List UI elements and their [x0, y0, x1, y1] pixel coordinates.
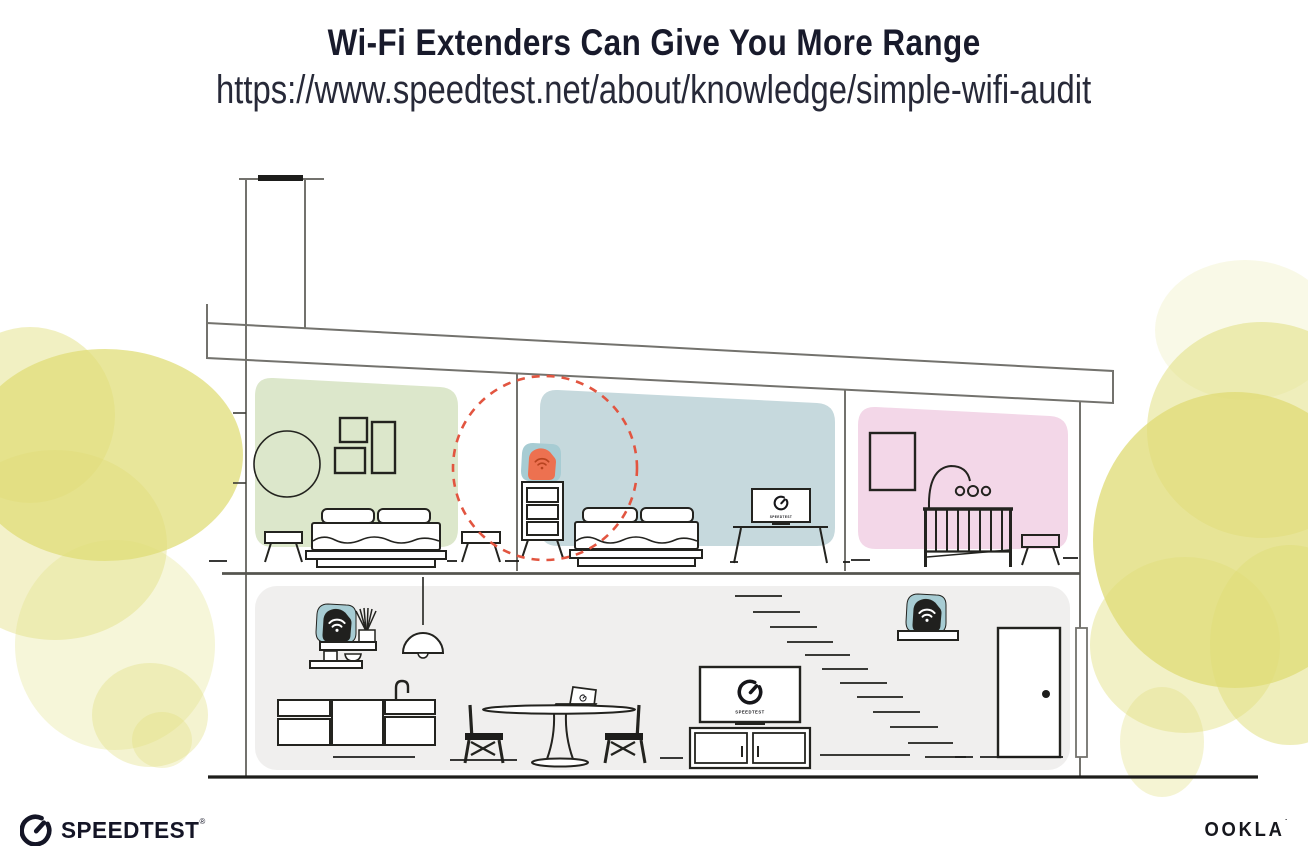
ookla-wordmark: OOKLA˙ — [1204, 818, 1290, 842]
wall-pipe — [1076, 628, 1087, 757]
nursery-pink-bg — [858, 407, 1068, 549]
stairs-shelf — [898, 631, 958, 640]
speedtest-logo: SPEEDTEST® — [20, 814, 209, 846]
door-knob — [1042, 690, 1050, 698]
front-door — [998, 628, 1060, 757]
speedtest-wordmark: SPEEDTEST® — [61, 817, 206, 844]
tv-stand — [690, 728, 810, 768]
foliage-right — [1090, 260, 1308, 797]
trademark-tick: ˙ — [1284, 818, 1290, 828]
tv-screen-label: SPEEDTEST — [735, 710, 764, 715]
chimney — [239, 175, 324, 329]
bed — [570, 508, 702, 566]
bedroom-tv: SPEEDTEST — [752, 489, 810, 525]
chimney-cap — [258, 175, 303, 181]
registered-mark: ® — [199, 817, 205, 826]
tv-screen-label: SPEEDTEST — [770, 515, 793, 519]
ookla-logo: OOKLA˙ — [1197, 818, 1290, 842]
house-cross-section-illustration: SPEEDTEST — [0, 0, 1308, 861]
infographic-page: Wi-Fi Extenders Can Give You More Range … — [0, 0, 1308, 861]
extender-dresser-group — [521, 443, 563, 558]
wall-shelf-upper — [320, 642, 376, 650]
foliage-left — [0, 327, 243, 768]
living-room-tv: SPEEDTEST — [700, 667, 800, 725]
speedtest-gauge-icon — [20, 814, 52, 846]
